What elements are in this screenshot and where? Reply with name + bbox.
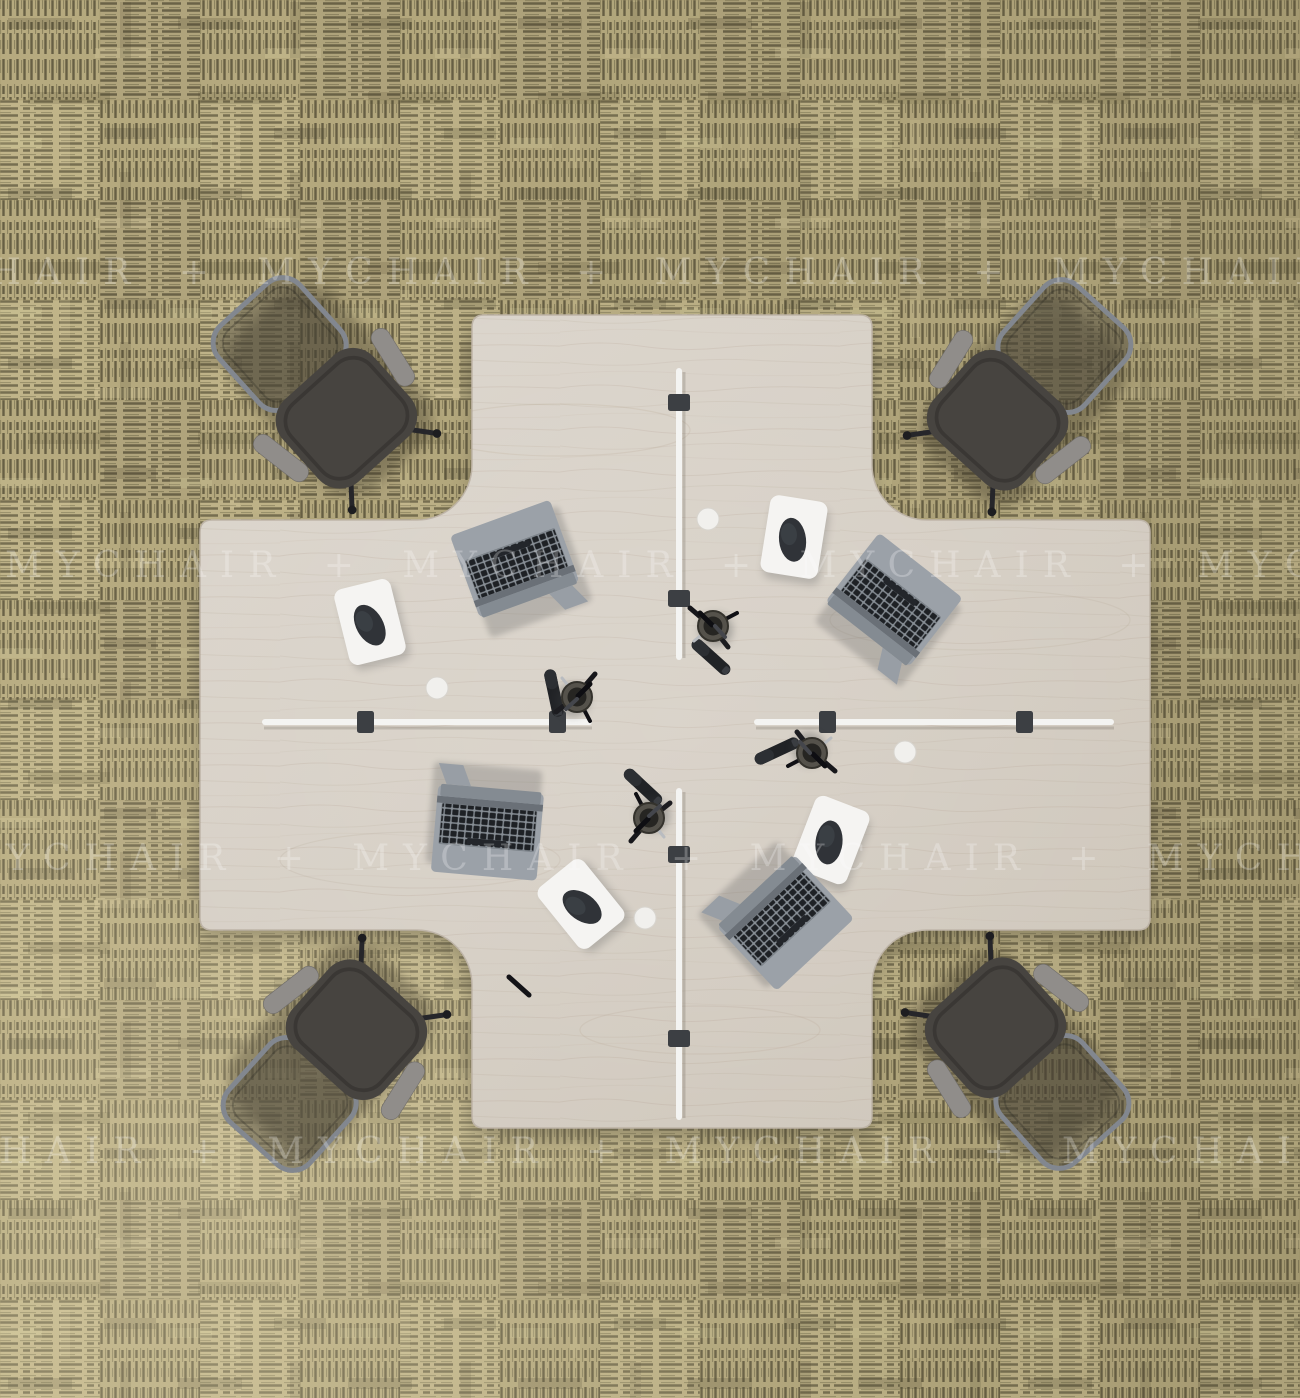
watermark-row: MYCHAIR + MYCHAIR + MYCHAIR + MYCHAIR <box>5 545 1300 586</box>
cable-grommet <box>894 741 916 763</box>
privacy-screen-right <box>754 719 1114 725</box>
watermark-row: MYCHAIR + MYCHAIR + MYCHAIR + MYCHAIR <box>0 838 1300 879</box>
screen-clamp <box>357 711 374 733</box>
watermark-row: MYCHAIR + MYCHAIR + MYCHAIR + MYCHAIR <box>0 1131 1300 1172</box>
screen-clamp <box>819 711 836 733</box>
cable-grommet <box>697 508 719 530</box>
privacy-screen-left <box>262 719 592 725</box>
office-workstation-top-view: MYCHAIR + MYCHAIR + MYCHAIR + MYCHAIR MY… <box>0 0 1300 1398</box>
cable-grommet <box>634 907 656 929</box>
product-render-canvas: MYCHAIR + MYCHAIR + MYCHAIR + MYCHAIR MY… <box>0 0 1300 1398</box>
cable-grommet <box>426 677 448 699</box>
privacy-screen-top <box>676 368 682 660</box>
screen-clamp <box>1016 711 1033 733</box>
screen-clamp <box>668 394 690 411</box>
screen-clamp <box>668 590 690 607</box>
watermark-row: MYCHAIR + MYCHAIR + MYCHAIR + MYCHAIR <box>0 252 1300 293</box>
screen-clamp <box>668 1030 690 1047</box>
